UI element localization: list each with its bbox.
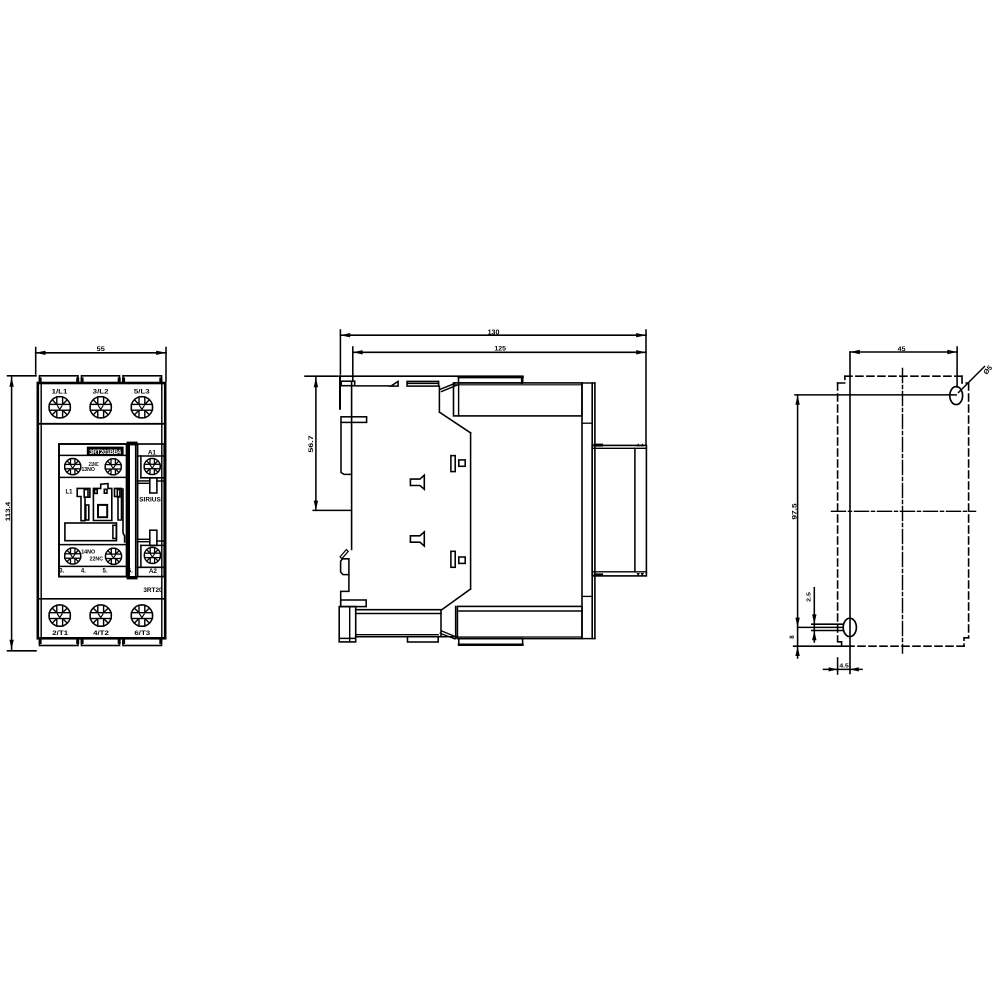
svg-text:1/L1: 1/L1 [52, 389, 68, 396]
svg-text:3RT201BB4: 3RT201BB4 [89, 449, 121, 456]
svg-text:3RT20: 3RT20 [143, 587, 163, 594]
svg-text:6/T3: 6/T3 [134, 630, 150, 637]
svg-text:3.: 3. [59, 568, 64, 574]
svg-text:130: 130 [488, 328, 500, 337]
svg-text:97.5: 97.5 [791, 503, 798, 520]
svg-text:5.: 5. [128, 568, 133, 574]
svg-text:2/T1: 2/T1 [52, 630, 68, 637]
svg-text:45: 45 [898, 346, 906, 353]
svg-text:4/T2: 4/T2 [93, 630, 109, 637]
svg-text:SIRIUS: SIRIUS [139, 497, 161, 504]
svg-text:A2: A2 [149, 568, 158, 575]
svg-text:13NO: 13NO [81, 467, 95, 473]
svg-text:55: 55 [97, 346, 106, 353]
svg-text:22NC: 22NC [90, 557, 104, 563]
svg-text:8: 8 [789, 635, 796, 639]
svg-text:2.5: 2.5 [806, 591, 812, 602]
svg-text:3/L2: 3/L2 [93, 389, 109, 396]
svg-text:113.4: 113.4 [6, 501, 12, 521]
svg-text:4.: 4. [81, 568, 86, 574]
svg-text:56.7: 56.7 [308, 435, 315, 453]
svg-text:5.: 5. [103, 568, 108, 574]
svg-text:5/L3: 5/L3 [134, 389, 150, 396]
svg-text:14NO: 14NO [81, 550, 96, 556]
svg-text:4.5: 4.5 [839, 663, 849, 669]
svg-text:125: 125 [494, 347, 506, 353]
svg-text:L1: L1 [66, 490, 74, 496]
